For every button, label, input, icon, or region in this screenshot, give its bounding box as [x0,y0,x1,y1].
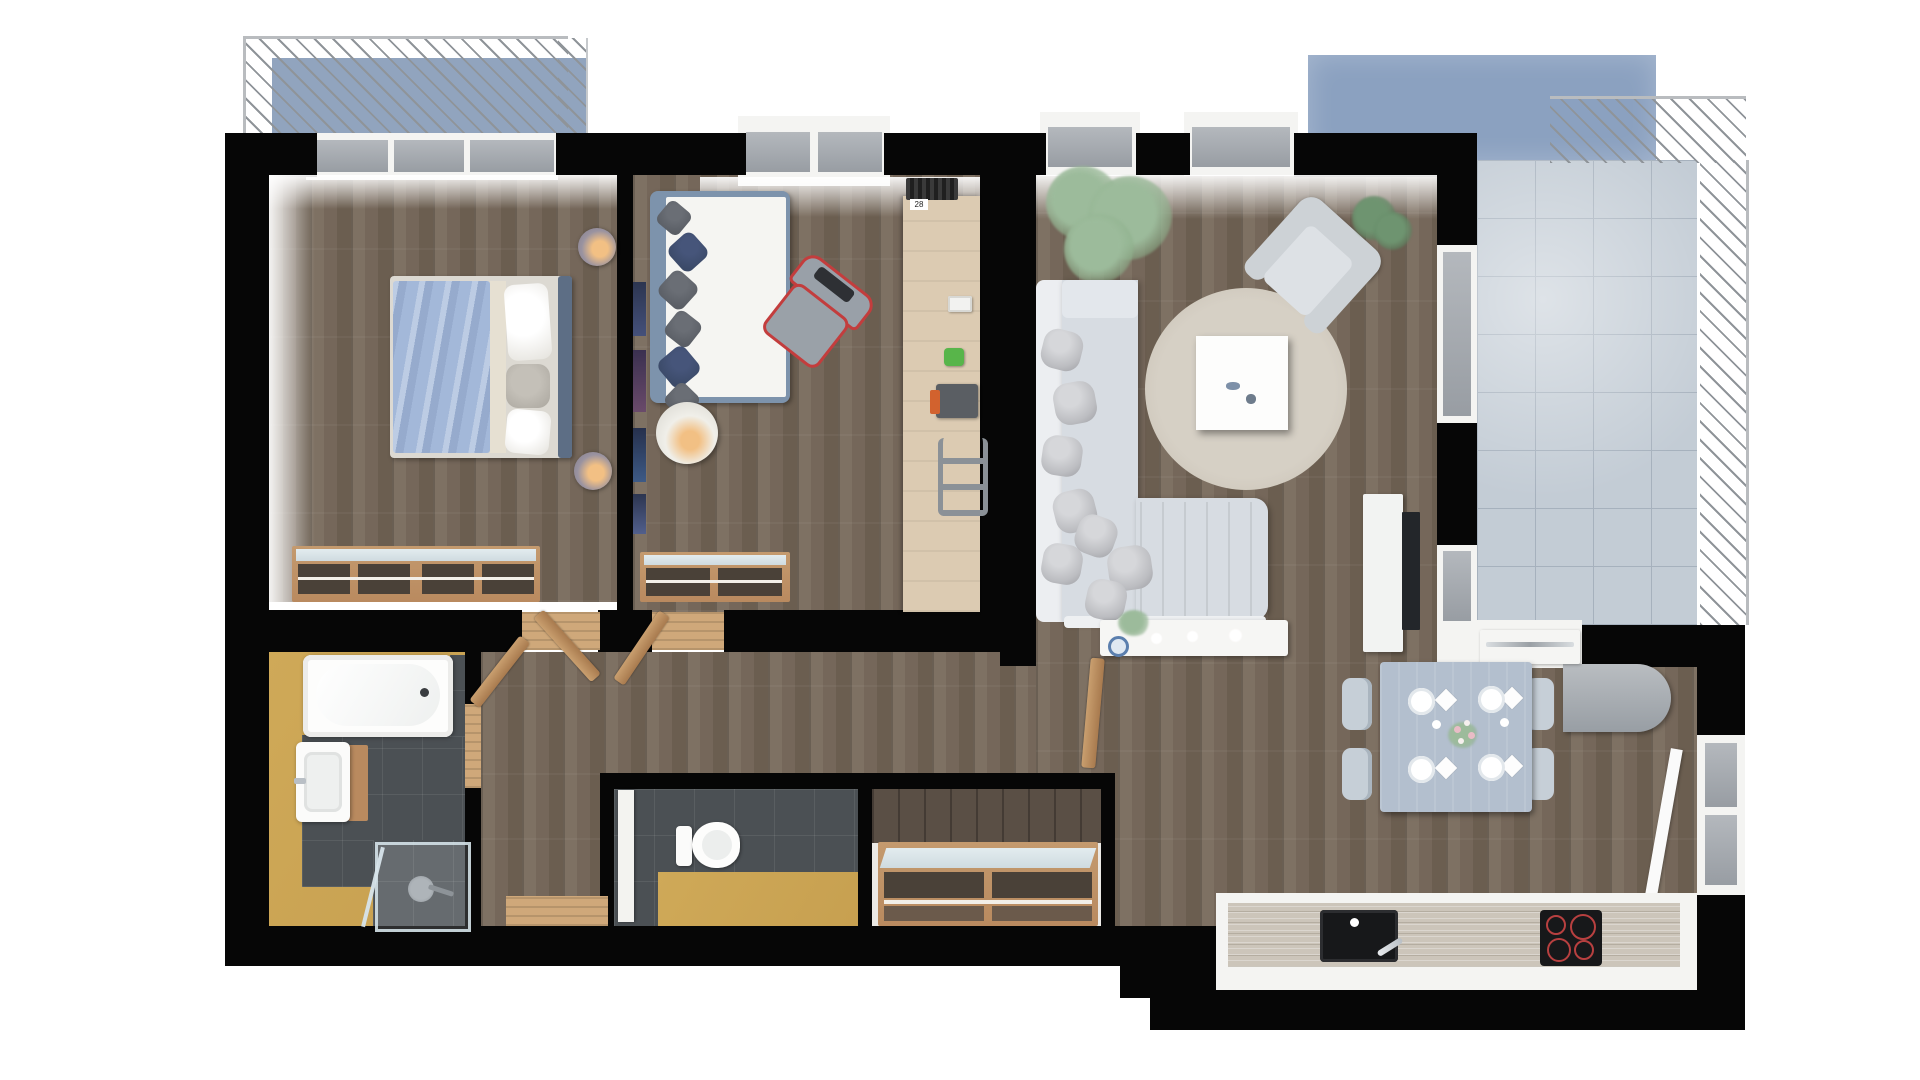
shoe-cabinet-cell [992,872,1092,898]
coffee-table [1196,336,1288,430]
radiator [906,178,958,200]
bedroom2-window-glass-2 [818,132,882,172]
storage-back-panel [872,787,1101,843]
shoe-cabinet-cell [884,872,984,898]
balcony-door-glass [470,140,554,172]
kitchen-sink [1320,910,1398,962]
wall-top-corner [225,133,317,177]
living-window-glass-2 [1192,127,1290,167]
wall-bottom-hall [480,926,1122,966]
wall-living-terrace-mid [1437,420,1477,548]
bedroom-left-face [269,175,315,602]
wardrobe-shelf-bedroom2 [640,552,790,602]
hallway-floor [481,652,1036,775]
floor-lamp [656,402,718,464]
wall-wc-mid [858,773,872,928]
wc-open-door [618,790,634,922]
floor-plan: 28 [0,0,1920,1080]
flower [1454,726,1461,733]
hob-burner [1570,914,1596,940]
balcony-railing-icon [243,36,568,137]
shelf-chrome-rail [1486,642,1574,647]
potted-plant-large [1064,214,1134,284]
kitchen-window-glass [1705,743,1737,807]
coffee-table-decor [1226,382,1240,390]
wall-poster [633,428,646,482]
nightstand-lamp-north [578,228,616,266]
bathroom-door-threshold [465,704,481,788]
wardrobe-shelf-bedroom [292,546,540,602]
shoe-cabinet-cell [884,906,984,921]
bedroom-window-glass [314,140,388,172]
coffee-table-decor [1246,394,1256,404]
wardrobe-shelf-line [298,577,534,580]
washbasin-faucet [294,778,306,784]
washbasin-cabinet [348,745,368,821]
wall-right-upper [1697,625,1745,739]
wall-left [225,133,269,966]
plate [1478,686,1505,713]
console-cup [1108,636,1129,657]
shoe-cabinet-glass [880,848,1096,868]
wardrobe-glass-top [644,555,786,565]
nightstand-lamp-south [574,452,612,490]
terrace-railing-right-icon [1700,160,1749,625]
shoe-cabinet-shelf [884,900,1092,904]
terrace-floor [1477,160,1697,625]
plate [1408,688,1435,715]
wc-floor [658,872,858,926]
wardrobe-shelf-line [646,580,782,583]
console-candle [1186,630,1199,643]
cup [1432,720,1441,729]
wall-wc-right [1101,773,1115,928]
wall-kitchen-bottom [1150,986,1745,1030]
radiator-tag: 28 [910,199,928,210]
dining-chair [1342,748,1372,800]
dining-chair [1342,678,1372,730]
console-candle [1150,632,1163,645]
kitchen-window-glass-2 [1705,815,1737,885]
hob-burner [1546,915,1566,935]
shoe-cabinet [878,842,1098,926]
balcony-railing-right-icon [558,38,588,135]
plate [1408,756,1435,783]
wall-poster [633,282,646,336]
washbasin-bowl [304,752,342,812]
wall-right-lower [1697,893,1745,1030]
console-plant-sprig [1118,610,1150,636]
flower [1468,732,1475,739]
wardrobe-glass-top [296,549,536,561]
desk-gadget [948,296,972,312]
flower [1458,738,1464,744]
kitchen-counter [1228,903,1680,967]
wall-bedroom-divider [617,175,633,612]
plate [1478,754,1505,781]
console-candle [1228,628,1243,643]
wall-top-d [1294,133,1443,177]
wall-poster [633,350,646,412]
tv [1402,512,1420,630]
bed-headboard [558,276,572,458]
hob-burner [1547,938,1571,962]
hob-burner [1574,940,1594,960]
bed-duvet [393,281,490,453]
bedroom-window-glass-2 [394,140,464,172]
toilet-tank [676,826,692,866]
cup [1500,718,1509,727]
sofa-chaise-seams [1140,502,1264,616]
wall-shelf-radiator [1480,630,1580,664]
toilet-seat [702,830,732,860]
wall-living-terrace-top [1437,133,1477,248]
desk-printer [936,384,978,418]
wall-above-fridge [1580,625,1697,667]
living-terrace-glass-2 [1443,551,1471,621]
wall-poster [633,494,646,534]
terrace-railing-top-icon [1550,96,1746,163]
living-window-glass [1048,127,1132,167]
bed-pillow-top [503,283,552,362]
living-terrace-glass [1443,252,1471,416]
wall-living-left [980,133,1036,652]
desk-orange-item [930,390,940,414]
shoe-cabinet-cell [992,906,1092,921]
wall-top-b [556,133,746,175]
bed-sheet [490,281,506,453]
drying-rack [938,438,988,516]
potted-plant-corner [1374,212,1412,250]
bedroom2-window-glass [746,132,810,172]
bed-pillow-bottom [504,408,552,456]
bed-pillow-mid [506,364,550,408]
sink-drain [1350,918,1359,927]
wall-bottom-bathroom [225,926,497,966]
bathtub-drain [420,688,429,697]
tv-console [1363,494,1403,652]
wall-hall-stub [1000,652,1036,666]
desk-plant-green [944,348,964,366]
fridge [1563,664,1671,732]
wall-top-pier [1136,133,1190,175]
flower [1464,720,1470,726]
sofa-armrest [1062,280,1138,318]
bedroom-sill [269,175,617,209]
entry-threshold [506,896,608,926]
